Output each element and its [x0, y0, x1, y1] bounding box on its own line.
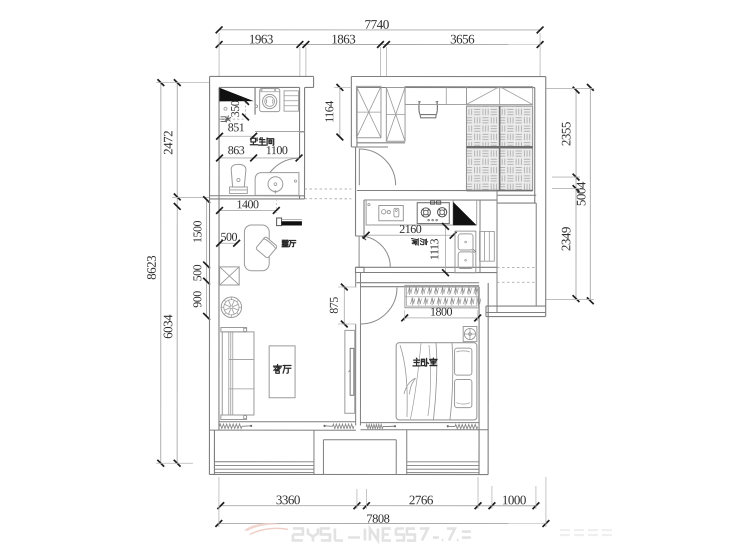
svg-text:3656: 3656: [450, 31, 475, 46]
svg-text:863: 863: [228, 143, 245, 157]
svg-text:900: 900: [190, 291, 204, 308]
svg-text:7740: 7740: [364, 17, 389, 32]
svg-text:1863: 1863: [331, 31, 355, 46]
svg-text:5004: 5004: [573, 181, 588, 206]
svg-text:1113: 1113: [427, 238, 441, 260]
svg-text:2349: 2349: [558, 227, 573, 251]
svg-text:7808: 7808: [366, 512, 389, 526]
svg-text:1963: 1963: [249, 31, 273, 46]
svg-text:1100: 1100: [266, 143, 288, 157]
svg-text:8623: 8623: [144, 256, 159, 280]
svg-text:1400: 1400: [237, 197, 260, 211]
svg-text:2766: 2766: [409, 492, 434, 507]
svg-text:500: 500: [221, 230, 238, 244]
svg-text:500: 500: [190, 264, 204, 281]
svg-text:1800: 1800: [430, 305, 453, 319]
svg-text:350: 350: [228, 100, 242, 117]
svg-text:2160: 2160: [399, 222, 422, 236]
svg-text:875: 875: [327, 297, 341, 314]
svg-text:1500: 1500: [190, 220, 204, 243]
svg-text:2472: 2472: [160, 131, 175, 155]
svg-text:2355: 2355: [558, 122, 573, 146]
svg-text:1164: 1164: [322, 101, 336, 123]
svg-text:851: 851: [228, 120, 245, 134]
svg-text:1000: 1000: [502, 492, 526, 507]
svg-text:6034: 6034: [160, 314, 175, 339]
svg-text:3360: 3360: [276, 492, 300, 507]
